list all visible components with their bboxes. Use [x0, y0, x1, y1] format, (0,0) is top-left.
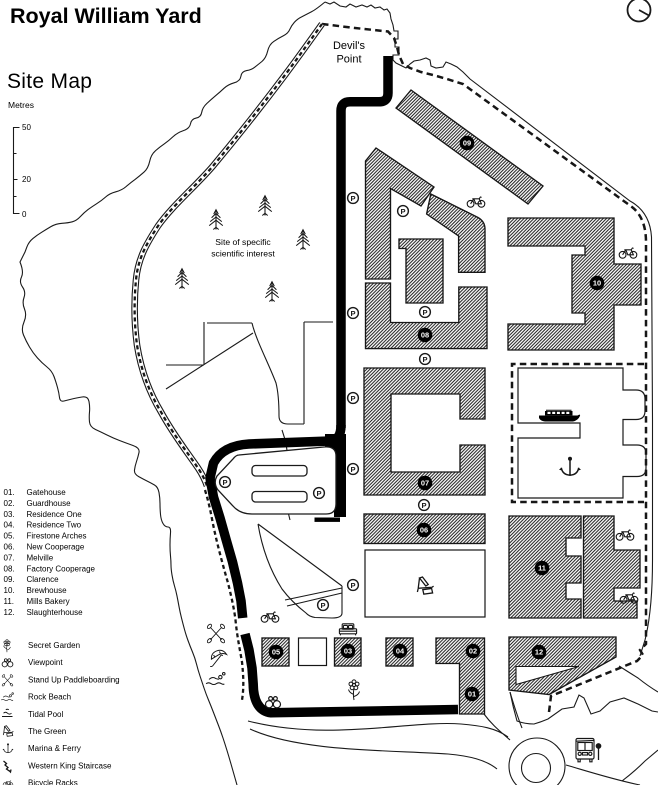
svg-text:scientific interest: scientific interest [211, 249, 275, 259]
svg-text:10.: 10. [4, 586, 15, 595]
svg-text:Residence Two: Residence Two [27, 521, 82, 530]
svg-text:01: 01 [468, 690, 476, 699]
svg-text:Mills Bakery: Mills Bakery [27, 597, 70, 606]
svg-text:05: 05 [272, 648, 280, 657]
svg-text:Secret Garden: Secret Garden [28, 641, 80, 650]
svg-text:20: 20 [22, 175, 31, 184]
svg-text:The Green: The Green [28, 727, 66, 736]
svg-text:Tidal Pool: Tidal Pool [28, 710, 64, 719]
svg-text:P: P [422, 355, 427, 364]
svg-text:02: 02 [469, 647, 477, 656]
svg-text:04: 04 [396, 647, 405, 656]
svg-text:02.: 02. [4, 499, 15, 508]
svg-text:05.: 05. [4, 532, 15, 541]
svg-text:Gatehouse: Gatehouse [27, 488, 67, 497]
svg-text:Point: Point [336, 54, 361, 66]
svg-text:11.: 11. [4, 597, 15, 606]
svg-text:P: P [222, 478, 227, 487]
svg-text:P: P [350, 309, 355, 318]
svg-text:P: P [350, 194, 355, 203]
svg-text:Western King Staircase: Western King Staircase [28, 761, 112, 770]
svg-text:P: P [421, 501, 426, 510]
svg-text:04.: 04. [4, 521, 15, 530]
svg-text:P: P [316, 489, 321, 498]
svg-text:P: P [422, 308, 427, 317]
svg-text:06.: 06. [4, 543, 15, 552]
svg-text:Royal William Yard: Royal William Yard [10, 4, 202, 28]
svg-text:Firestone Arches: Firestone Arches [27, 532, 87, 541]
svg-text:Slaughterhouse: Slaughterhouse [27, 608, 84, 617]
svg-text:09.: 09. [4, 575, 15, 584]
svg-text:06: 06 [420, 526, 428, 535]
svg-text:Site of specific: Site of specific [215, 237, 271, 247]
svg-text:12: 12 [535, 648, 543, 657]
svg-text:Residence One: Residence One [27, 510, 83, 519]
svg-text:Site Map: Site Map [7, 70, 92, 93]
svg-text:09: 09 [463, 139, 471, 148]
svg-text:P: P [350, 465, 355, 474]
svg-text:Melville: Melville [27, 553, 54, 562]
svg-text:Brewhouse: Brewhouse [27, 586, 68, 595]
svg-text:03: 03 [344, 647, 352, 656]
svg-text:01.: 01. [4, 488, 15, 497]
svg-text:Marina & Ferry: Marina & Ferry [28, 744, 81, 753]
svg-text:P: P [320, 601, 325, 610]
svg-text:12.: 12. [4, 608, 15, 617]
svg-text:Metres: Metres [8, 100, 34, 110]
svg-text:P: P [400, 207, 405, 216]
svg-text:Stand Up Paddleboarding: Stand Up Paddleboarding [28, 675, 120, 684]
svg-text:Viewpoint: Viewpoint [28, 658, 63, 667]
svg-text:0: 0 [22, 210, 27, 219]
svg-text:Clarence: Clarence [27, 575, 60, 584]
svg-text:07.: 07. [4, 553, 15, 562]
svg-text:Rock Beach: Rock Beach [28, 693, 71, 702]
svg-text:New Cooperage: New Cooperage [27, 543, 85, 552]
svg-text:11: 11 [538, 564, 546, 573]
svg-text:08.: 08. [4, 564, 15, 573]
svg-text:50: 50 [22, 123, 31, 132]
svg-text:10: 10 [593, 279, 601, 288]
svg-text:08: 08 [421, 331, 429, 340]
svg-text:03.: 03. [4, 510, 15, 519]
svg-text:P: P [350, 581, 355, 590]
svg-text:Bicycle Racks: Bicycle Racks [28, 779, 78, 785]
svg-text:Guardhouse: Guardhouse [27, 499, 72, 508]
svg-text:Devil's: Devil's [333, 40, 366, 52]
svg-text:07: 07 [421, 479, 429, 488]
svg-text:Factory Cooperage: Factory Cooperage [27, 564, 96, 573]
svg-text:P: P [350, 394, 355, 403]
